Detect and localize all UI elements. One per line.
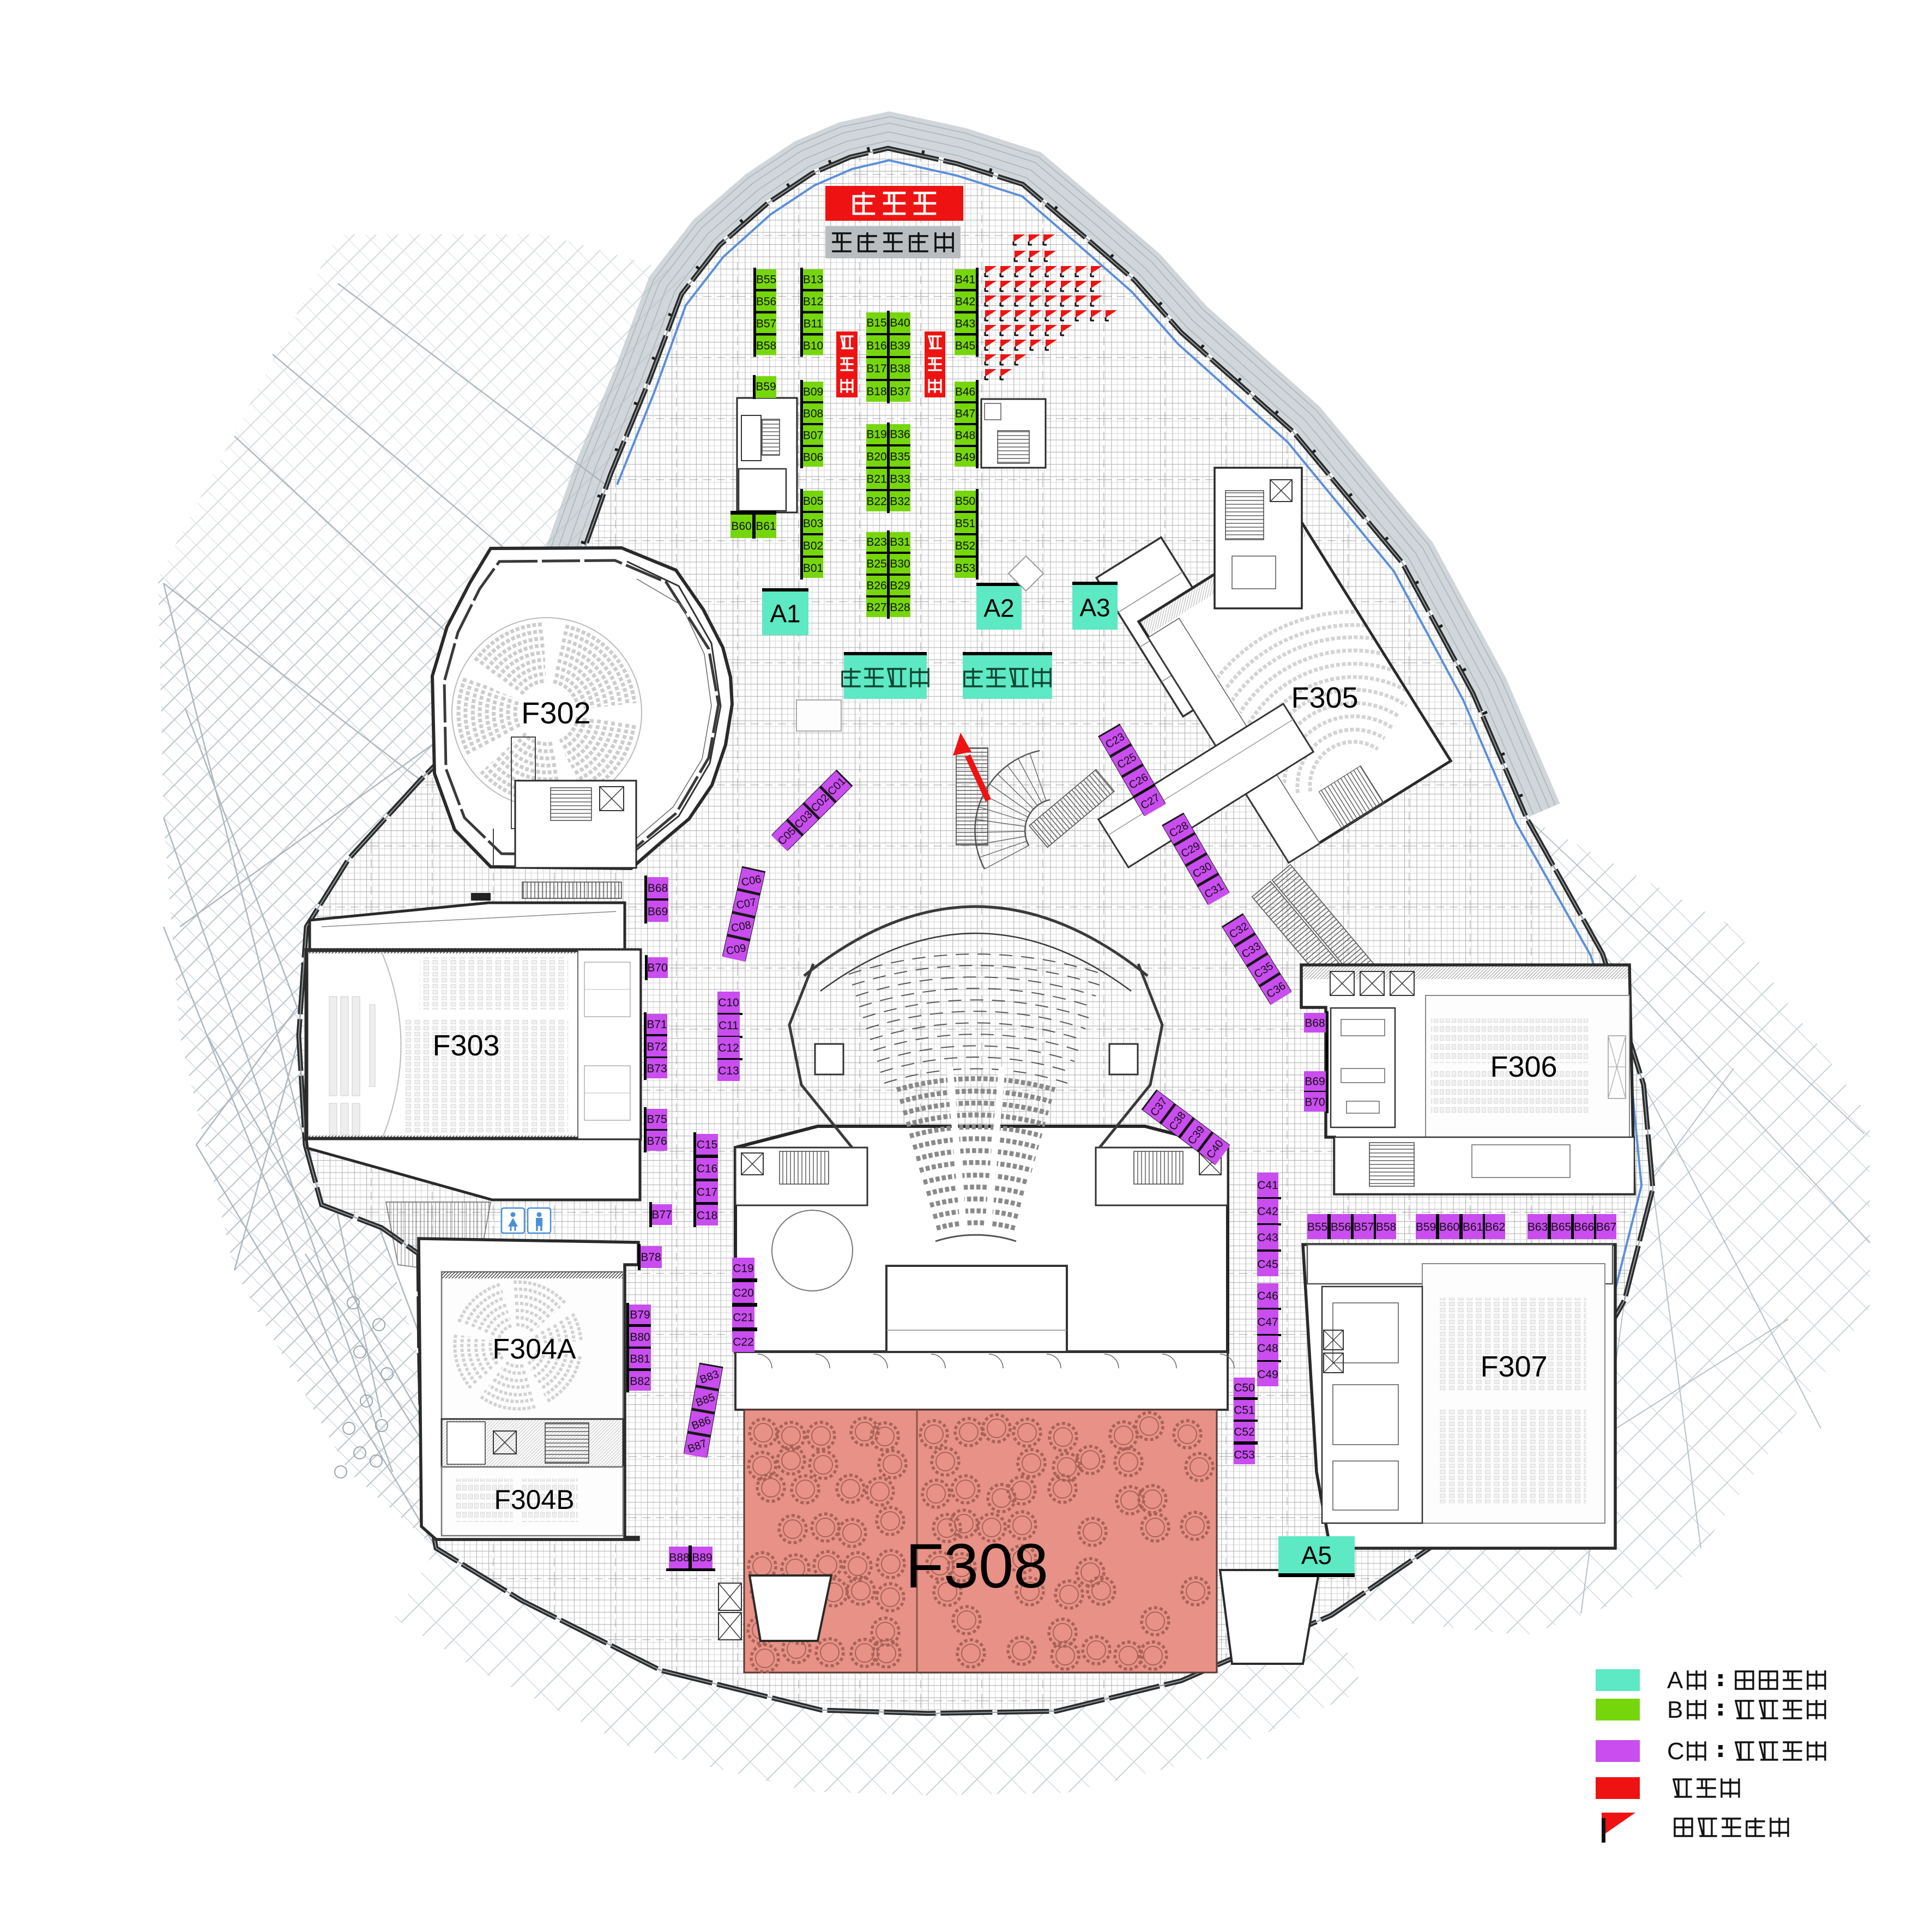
- svg-text:A1: A1: [770, 600, 800, 628]
- svg-text:B68: B68: [648, 882, 668, 895]
- svg-text:B05: B05: [803, 495, 823, 508]
- svg-text:B53: B53: [955, 562, 975, 575]
- svg-text:B: B: [1667, 1696, 1683, 1723]
- svg-text:A5: A5: [1301, 1541, 1332, 1569]
- svg-text:F308: F308: [905, 1531, 1048, 1601]
- svg-text:C46: C46: [1257, 1290, 1278, 1302]
- svg-text:C48: C48: [1257, 1342, 1278, 1355]
- svg-text:B60: B60: [731, 520, 751, 533]
- svg-text:B51: B51: [955, 517, 975, 530]
- svg-text:B55: B55: [1307, 1221, 1327, 1234]
- svg-text:B58: B58: [756, 340, 776, 352]
- svg-text:B52: B52: [955, 540, 975, 552]
- svg-text:B61: B61: [1463, 1221, 1483, 1234]
- svg-text:C15: C15: [697, 1139, 718, 1151]
- svg-text:C19: C19: [733, 1263, 754, 1275]
- svg-text:B71: B71: [647, 1018, 667, 1031]
- svg-text:B67: B67: [1596, 1221, 1616, 1234]
- svg-text:B15: B15: [866, 317, 886, 329]
- svg-text:B59: B59: [756, 381, 776, 393]
- svg-text:B89: B89: [692, 1551, 712, 1564]
- svg-text:B69: B69: [648, 905, 668, 918]
- svg-text:C52: C52: [1234, 1426, 1255, 1439]
- svg-text:B76: B76: [647, 1135, 667, 1148]
- svg-text:B21: B21: [866, 473, 886, 486]
- svg-text:B61: B61: [756, 520, 776, 533]
- svg-text:B12: B12: [803, 295, 823, 308]
- svg-text:B41: B41: [955, 274, 975, 286]
- svg-text:C17: C17: [697, 1186, 718, 1199]
- svg-text:F304A: F304A: [492, 1333, 576, 1365]
- svg-text:B58: B58: [1376, 1221, 1396, 1234]
- svg-text:B66: B66: [1574, 1221, 1594, 1234]
- svg-text:C11: C11: [719, 1019, 739, 1032]
- svg-text:B57: B57: [1354, 1221, 1374, 1234]
- svg-text:B59: B59: [1416, 1221, 1436, 1234]
- svg-text:B11: B11: [804, 318, 823, 330]
- svg-text:C53: C53: [1234, 1449, 1255, 1462]
- svg-text:B17: B17: [866, 363, 886, 375]
- svg-text:B38: B38: [890, 363, 910, 375]
- svg-text:B45: B45: [955, 340, 975, 352]
- svg-text:C49: C49: [1257, 1368, 1278, 1381]
- svg-text:B57: B57: [756, 318, 776, 330]
- svg-text:F307: F307: [1480, 1350, 1547, 1383]
- svg-text:B50: B50: [955, 495, 975, 508]
- svg-text:B65: B65: [1551, 1221, 1571, 1234]
- svg-text:F306: F306: [1490, 1050, 1557, 1083]
- svg-text:B48: B48: [955, 430, 975, 442]
- svg-text:F305: F305: [1291, 681, 1358, 714]
- svg-text:B27: B27: [866, 601, 886, 614]
- svg-text:B23: B23: [866, 536, 886, 548]
- svg-text:B32: B32: [890, 496, 910, 508]
- svg-text:B56: B56: [1331, 1221, 1351, 1234]
- svg-text:C50: C50: [1234, 1382, 1255, 1394]
- svg-text:B70: B70: [647, 962, 667, 974]
- svg-text:A3: A3: [1079, 594, 1110, 622]
- svg-text:B77: B77: [651, 1209, 672, 1221]
- svg-text:F303: F303: [432, 1029, 499, 1062]
- svg-text:F304B: F304B: [494, 1484, 574, 1515]
- svg-text:B25: B25: [866, 558, 886, 570]
- svg-text:B31: B31: [890, 536, 910, 548]
- svg-text:B60: B60: [1439, 1221, 1459, 1234]
- svg-text:B56: B56: [756, 295, 776, 308]
- svg-text:C: C: [1667, 1738, 1685, 1765]
- svg-text:B49: B49: [955, 451, 975, 464]
- svg-text:B78: B78: [641, 1251, 661, 1264]
- svg-text:B70: B70: [1305, 1096, 1325, 1109]
- svg-text:B79: B79: [630, 1309, 650, 1321]
- svg-text:B16: B16: [866, 340, 886, 352]
- svg-text:B81: B81: [630, 1353, 650, 1366]
- svg-text:B01: B01: [803, 562, 823, 575]
- svg-text:B68: B68: [1305, 1017, 1325, 1030]
- svg-text:B63: B63: [1528, 1221, 1548, 1234]
- svg-text:C12: C12: [718, 1042, 739, 1054]
- svg-text:B07: B07: [803, 430, 823, 442]
- svg-text:C41: C41: [1257, 1179, 1278, 1192]
- svg-text:C13: C13: [718, 1065, 739, 1077]
- svg-text:B36: B36: [890, 428, 910, 441]
- svg-text:B28: B28: [890, 601, 910, 614]
- svg-text:B42: B42: [955, 295, 975, 308]
- svg-text:B75: B75: [647, 1113, 667, 1126]
- svg-text:C22: C22: [733, 1336, 754, 1349]
- svg-text:B02: B02: [803, 540, 823, 552]
- svg-text:C21: C21: [733, 1312, 754, 1324]
- svg-text:B29: B29: [890, 579, 910, 592]
- svg-text:C47: C47: [1257, 1316, 1278, 1329]
- svg-text:B06: B06: [803, 451, 823, 464]
- svg-text:B55: B55: [756, 274, 776, 286]
- svg-text:B46: B46: [955, 386, 975, 399]
- svg-text:C42: C42: [1257, 1205, 1278, 1218]
- svg-text:A: A: [1667, 1667, 1683, 1694]
- svg-text:C20: C20: [733, 1287, 754, 1300]
- svg-text:B72: B72: [647, 1041, 667, 1053]
- svg-text:B20: B20: [866, 451, 886, 463]
- svg-text:C10: C10: [718, 997, 739, 1009]
- svg-text:B10: B10: [803, 340, 823, 352]
- svg-text:B35: B35: [890, 451, 910, 463]
- svg-text:B62: B62: [1485, 1221, 1505, 1234]
- svg-text:C16: C16: [697, 1163, 718, 1175]
- svg-text:B88: B88: [669, 1551, 689, 1564]
- svg-text:B13: B13: [803, 274, 823, 286]
- svg-text:B19: B19: [866, 428, 886, 441]
- svg-text:B30: B30: [890, 558, 910, 570]
- svg-text:A2: A2: [983, 594, 1014, 623]
- svg-text:F302: F302: [521, 696, 591, 730]
- svg-text:B40: B40: [890, 317, 910, 329]
- svg-text:B18: B18: [866, 385, 886, 398]
- svg-text:C18: C18: [697, 1210, 718, 1222]
- svg-text:B08: B08: [803, 408, 823, 420]
- svg-text:B82: B82: [630, 1375, 650, 1388]
- svg-text:B73: B73: [647, 1062, 667, 1075]
- svg-text:B26: B26: [866, 579, 886, 592]
- svg-text:B33: B33: [890, 473, 910, 486]
- svg-text:B09: B09: [803, 386, 823, 399]
- svg-text:B80: B80: [630, 1331, 650, 1344]
- svg-text:B69: B69: [1305, 1076, 1325, 1088]
- svg-text:B37: B37: [890, 385, 910, 398]
- svg-text:B43: B43: [955, 318, 975, 330]
- svg-text:C43: C43: [1257, 1231, 1278, 1244]
- svg-text:B03: B03: [803, 517, 823, 530]
- svg-text:B22: B22: [866, 496, 886, 508]
- svg-text:C51: C51: [1234, 1404, 1255, 1417]
- svg-text:B39: B39: [890, 340, 910, 352]
- svg-text:C45: C45: [1257, 1258, 1278, 1271]
- svg-text:B47: B47: [955, 408, 975, 420]
